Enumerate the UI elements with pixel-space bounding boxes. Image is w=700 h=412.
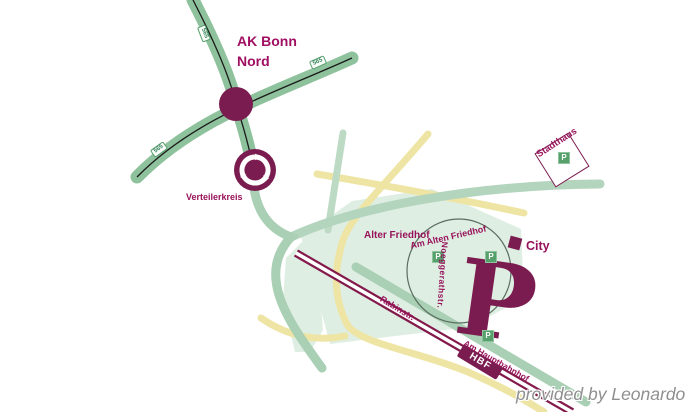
label-city: City	[526, 238, 550, 256]
parking-icon-hotel-right: P	[485, 251, 497, 263]
roundabout-icon	[234, 149, 276, 191]
parking-icon-hauptbahnhof: P	[482, 330, 494, 342]
label-verteilerkreis: Verteilerkreis	[186, 191, 243, 204]
junction-ak-bonn-nord-dot	[219, 87, 253, 121]
hotel-location-map: P 565 565 565 P P P P HBF AK Bonn Nord V…	[0, 0, 700, 412]
map-canvas: P	[0, 0, 700, 412]
label-ak-bonn-nord: AK Bonn Nord	[237, 31, 297, 72]
provider-watermark: provided by Leonardo	[516, 384, 685, 405]
parking-icon-stadthaus: P	[558, 152, 570, 164]
